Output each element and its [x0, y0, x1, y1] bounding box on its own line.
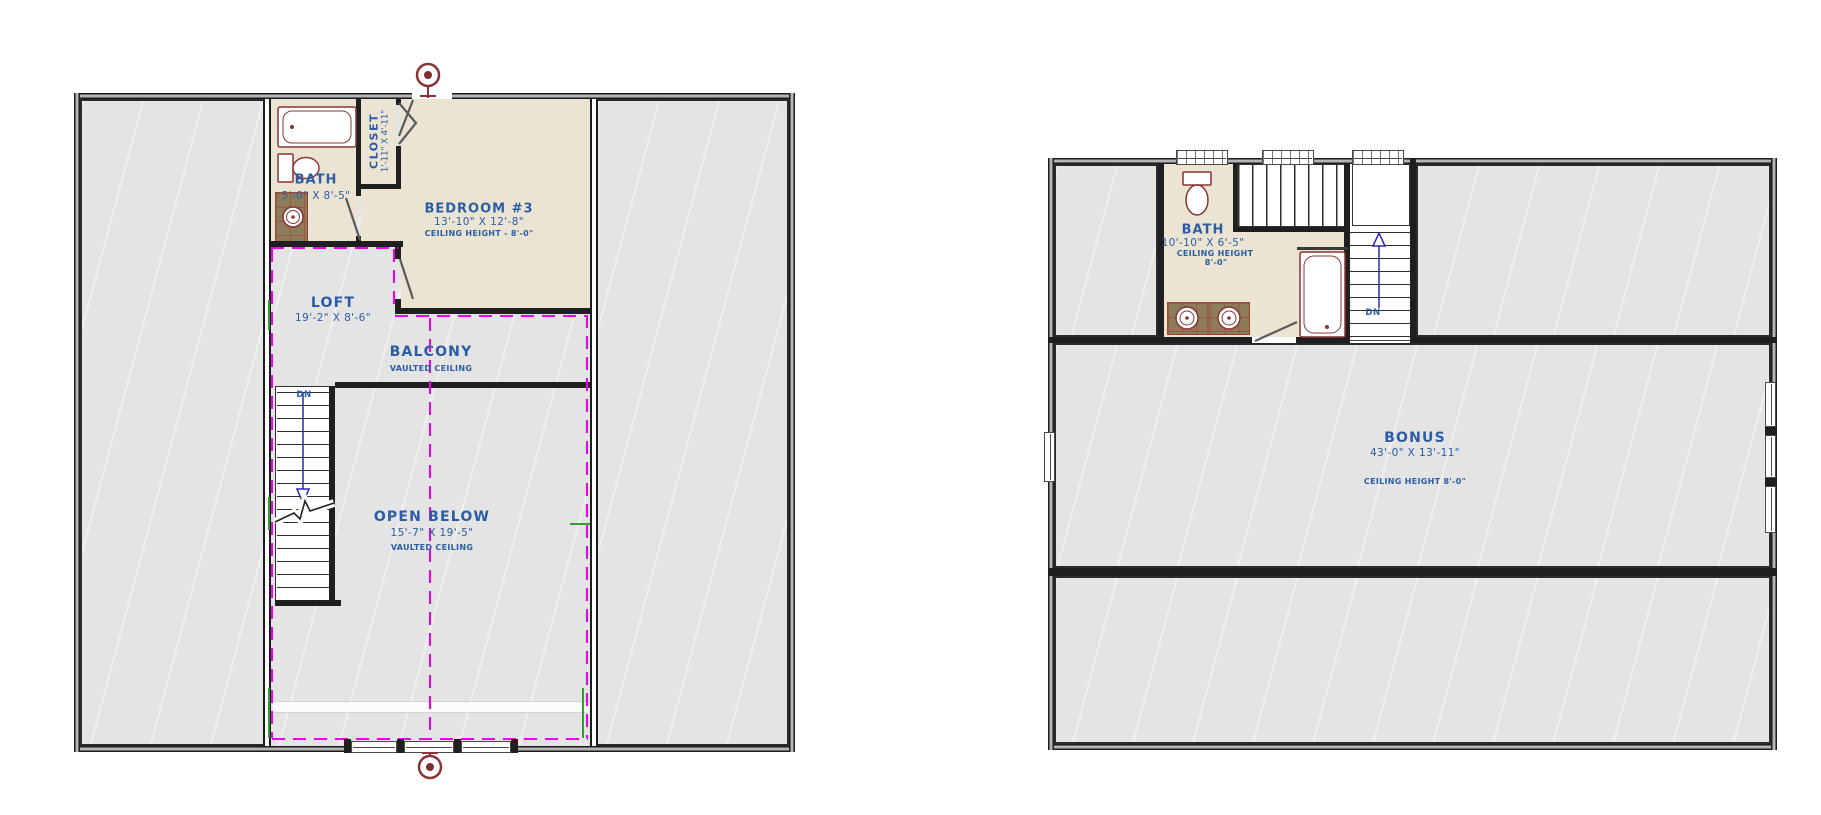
green-ref-left-a: [268, 300, 270, 330]
window: [461, 741, 511, 753]
vanity-counter: [1167, 302, 1250, 335]
stair-treads: [277, 392, 333, 600]
green-ref-left-c: [268, 688, 270, 738]
wall2-stair-right: [1410, 158, 1416, 343]
stair-treads-2: [1350, 232, 1410, 338]
closet-label-block: CLOSET 1'-11" X 4'-11": [368, 110, 390, 172]
balcony-ceiling: VAULTED CEILING: [390, 365, 472, 373]
floorplan-canvas: BATH 5'-0" X 8'-5" CLOSET 1'-11" X 4'-11…: [0, 0, 1821, 815]
open-below-ceiling: VAULTED CEILING: [391, 544, 473, 552]
window: [351, 741, 397, 753]
loft-dims: 19'-2" X 8'-6": [295, 313, 371, 324]
wall-attic-left: [263, 99, 271, 746]
window-right-wall: [1765, 382, 1776, 427]
green-ref-left-b: [268, 497, 270, 530]
wall2-shelves-bottom: [1233, 227, 1348, 232]
bath-label: BATH: [295, 174, 338, 187]
closet-shelves: [1237, 164, 1348, 227]
wall-attic-right: [590, 99, 598, 746]
magenta-edge-right: [586, 315, 588, 738]
attic-room-right: [596, 99, 789, 746]
balcony-label: BALCONY: [390, 345, 473, 359]
stairs-dn-label: DN: [296, 391, 311, 400]
wall-bedroom-bottom: [395, 308, 590, 314]
window-post: [511, 739, 518, 753]
green-ref-right-a: [582, 688, 584, 738]
bath2-ceiling-1: CEILING HEIGHT: [1177, 250, 1254, 258]
wall-bath-closet-a: [356, 99, 361, 196]
loft-label: LOFT: [311, 296, 355, 310]
bath-dims: 5'-0" X 8'-5": [282, 191, 351, 202]
closet-dims: 1'-11" X 4'-11": [381, 110, 390, 172]
wall-closet-bottom: [356, 184, 401, 189]
bedroom3-ceiling: CEILING HEIGHT - 8'-0": [425, 230, 534, 238]
magenta-edge-bottom: [272, 738, 588, 740]
bath2-ceiling-2: 8'-0": [1205, 259, 1228, 267]
bonus-label: BONUS: [1384, 431, 1446, 445]
bedroom3-room-ext: [361, 188, 401, 243]
magenta-bedroom-left: [393, 249, 395, 312]
window-post: [344, 739, 351, 753]
window-right-wall: [1765, 435, 1776, 478]
window-left-wall: [1044, 432, 1055, 482]
ext-wall-right: [789, 93, 795, 752]
stairs2-dn-label: DN: [1365, 309, 1380, 318]
wall2-shelves-left: [1233, 164, 1237, 232]
green-ref-right-b: [570, 523, 590, 525]
window-post: [1765, 478, 1776, 486]
wall-openbelow-top: [335, 382, 590, 388]
dormer-window: [1352, 150, 1404, 165]
side-room-left: [1054, 164, 1158, 337]
bedroom3-label: BEDROOM #3: [424, 203, 533, 216]
magenta-loft-top: [271, 247, 398, 249]
attic-room-left: [80, 99, 265, 746]
door-gap-top-wall: [412, 93, 452, 99]
wall-light-icon: [419, 752, 441, 778]
window-post: [397, 739, 404, 753]
window-post: [454, 739, 461, 753]
bonus-dims: 43'-0" X 13'-11": [1370, 448, 1460, 459]
wall-stair-bottom: [275, 600, 341, 606]
wall2-leftroom-right: [1158, 164, 1164, 343]
ext-wall-left: [74, 93, 80, 752]
bottom-band-room: [1054, 576, 1771, 744]
stair-landing: [1352, 164, 1410, 226]
stair-exit-line: [1350, 340, 1410, 341]
bedroom3-dims: 13'-10" X 12'-8": [434, 217, 524, 228]
open-below-dims: 15'-7" X 19'-5": [391, 528, 474, 539]
magenta-edge-left: [271, 249, 273, 738]
dormer-window: [1176, 150, 1228, 165]
window-right-wall: [1765, 486, 1776, 533]
ext2-wall-bottom: [1048, 744, 1777, 750]
wall2-band-b: [1296, 337, 1350, 343]
side-room-right: [1416, 164, 1771, 337]
closet-label: CLOSET: [368, 110, 379, 172]
magenta-bedroom-bottom: [395, 315, 587, 317]
bath2-dims: 10'-10" X 6'-5": [1162, 238, 1245, 249]
tub-deck-line: [1297, 247, 1348, 250]
window: [404, 741, 454, 753]
wall2-bonus-bottom: [1048, 568, 1777, 576]
wall2-stair-left: [1344, 164, 1350, 343]
window-post: [1765, 427, 1776, 435]
wall-closet-right-b: [396, 146, 401, 188]
bonus-ceiling: CEILING HEIGHT 8'-0": [1364, 478, 1466, 486]
open-below-label: OPEN BELOW: [374, 510, 490, 524]
bath2-label: BATH: [1182, 224, 1225, 237]
wall-closet-right-a: [396, 99, 401, 105]
wall2-band-a: [1048, 337, 1252, 343]
dormer-window: [1262, 150, 1314, 165]
wall2-band-c: [1410, 337, 1777, 343]
wall-stair-right: [329, 386, 335, 606]
